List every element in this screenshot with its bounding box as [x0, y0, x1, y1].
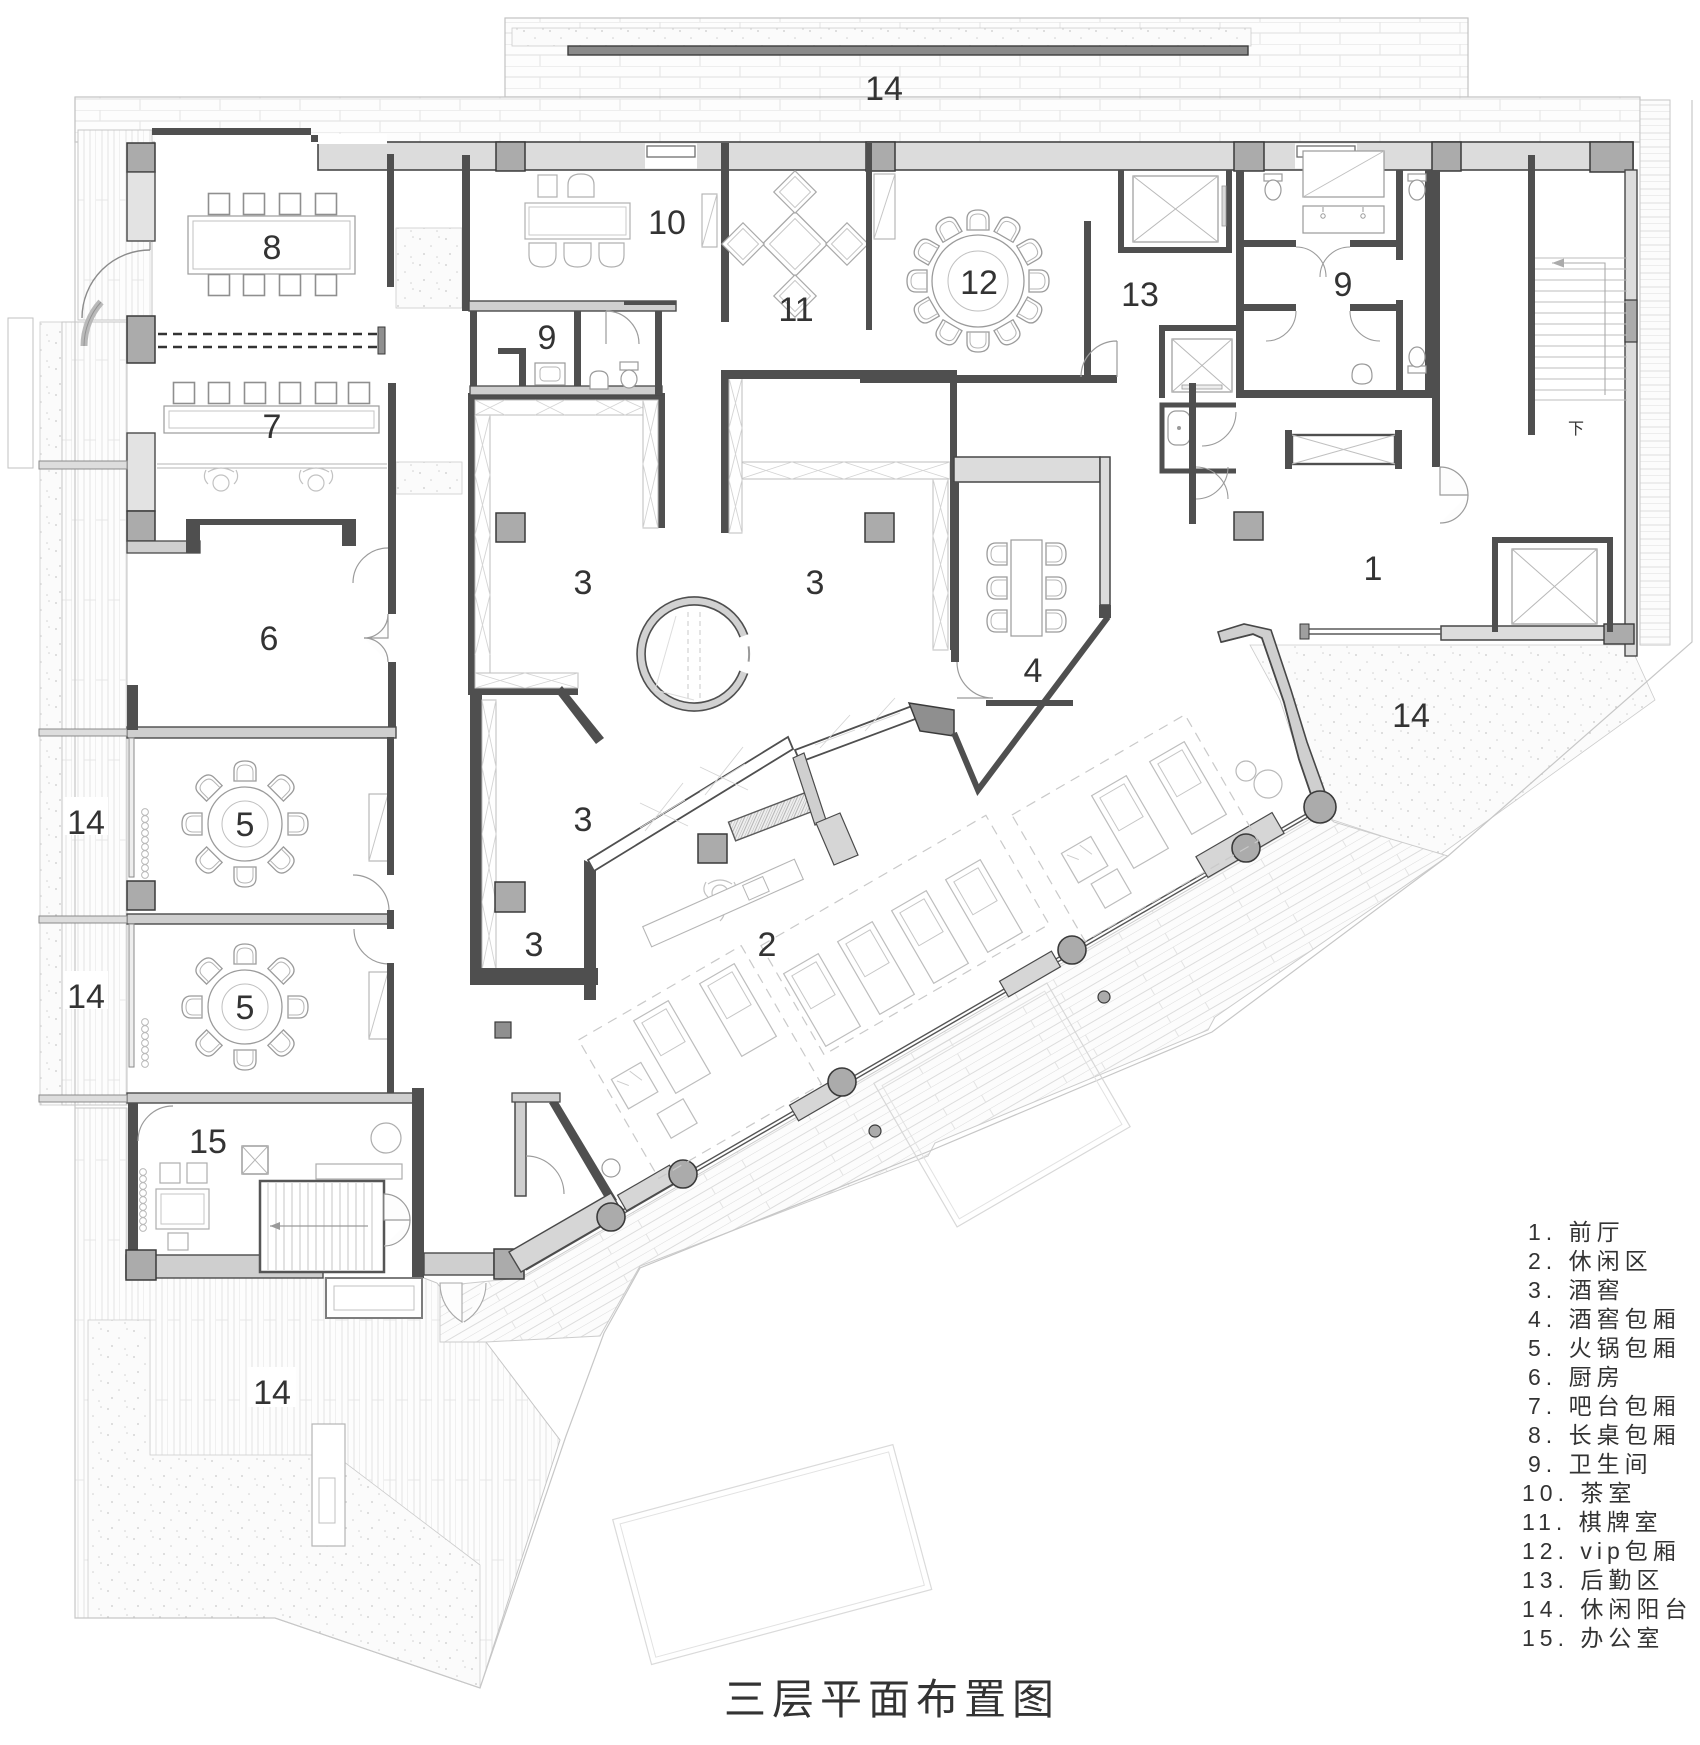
svg-text:3. 酒窖: 3. 酒窖 — [1528, 1277, 1625, 1303]
svg-text:5. 火锅包厢: 5. 火锅包厢 — [1528, 1335, 1681, 1361]
svg-text:14: 14 — [865, 70, 903, 108]
svg-text:8. 长桌包厢: 8. 长桌包厢 — [1528, 1422, 1681, 1448]
svg-text:9: 9 — [1334, 266, 1353, 304]
svg-text:12. vip包厢: 12. vip包厢 — [1522, 1538, 1681, 1564]
svg-text:2: 2 — [758, 926, 777, 964]
svg-text:5: 5 — [236, 806, 255, 844]
svg-text:5: 5 — [236, 989, 255, 1027]
svg-text:13: 13 — [1121, 276, 1159, 314]
svg-text:15: 15 — [189, 1123, 227, 1161]
svg-text:下: 下 — [1568, 421, 1584, 438]
svg-text:3: 3 — [574, 801, 593, 839]
svg-text:12: 12 — [960, 264, 998, 302]
svg-text:6: 6 — [260, 620, 279, 658]
svg-text:9. 卫生间: 9. 卫生间 — [1528, 1451, 1653, 1477]
svg-text:1: 1 — [1364, 550, 1383, 588]
svg-text:3: 3 — [806, 564, 825, 602]
svg-text:13. 后勤区: 13. 后勤区 — [1522, 1567, 1664, 1593]
svg-text:15. 办公室: 15. 办公室 — [1522, 1625, 1664, 1651]
svg-text:三层平面布置图: 三层平面布置图 — [724, 1676, 1060, 1723]
svg-text:10. 茶室: 10. 茶室 — [1522, 1480, 1636, 1506]
svg-text:9: 9 — [538, 319, 557, 357]
svg-text:8: 8 — [263, 229, 282, 267]
svg-text:14: 14 — [253, 1374, 291, 1412]
svg-text:3: 3 — [525, 926, 544, 964]
svg-text:11. 棋牌室: 11. 棋牌室 — [1522, 1509, 1663, 1535]
svg-text:14: 14 — [1392, 697, 1430, 735]
svg-text:6. 厨房: 6. 厨房 — [1528, 1364, 1625, 1390]
svg-text:10: 10 — [648, 204, 686, 242]
svg-text:14: 14 — [67, 804, 105, 842]
svg-text:4: 4 — [1024, 652, 1043, 690]
svg-text:14. 休闲阳台: 14. 休闲阳台 — [1522, 1596, 1692, 1622]
svg-text:1. 前厅: 1. 前厅 — [1528, 1219, 1625, 1245]
svg-text:7: 7 — [263, 408, 282, 446]
svg-text:7. 吧台包厢: 7. 吧台包厢 — [1528, 1393, 1681, 1419]
svg-text:4. 酒窖包厢: 4. 酒窖包厢 — [1528, 1306, 1681, 1332]
svg-text:11: 11 — [778, 291, 813, 329]
svg-text:14: 14 — [67, 978, 105, 1016]
svg-text:3: 3 — [574, 564, 593, 602]
svg-text:2. 休闲区: 2. 休闲区 — [1528, 1248, 1653, 1274]
